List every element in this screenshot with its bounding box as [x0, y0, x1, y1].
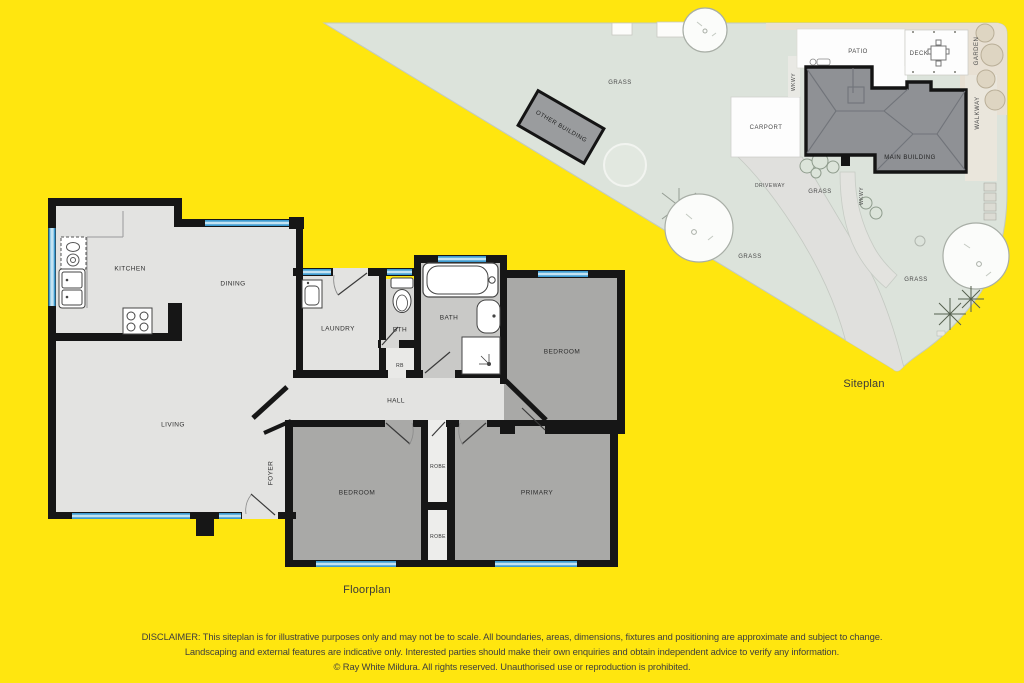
room-label-laundry: LAUNDRY: [321, 326, 355, 333]
room-label-robe-2: ROBE: [430, 534, 446, 540]
room-label-rb: RB: [396, 363, 404, 369]
disclaimer-line-2: Landscaping and external features are in…: [0, 644, 1024, 659]
room-label-hall: HALL: [387, 398, 405, 405]
room-label-living: LIVING: [161, 422, 185, 429]
room-label-bath: BATH: [440, 315, 458, 322]
room-label-bedroom-2: BEDROOM: [339, 490, 375, 497]
room-label-robe-1: ROBE: [430, 464, 446, 470]
room-label-primary: PRIMARY: [521, 490, 553, 497]
siteplan-title: Siteplan: [843, 378, 884, 390]
site-label-walkway: WALKWAY: [975, 96, 981, 129]
floorplan-title: Floorplan: [343, 584, 391, 596]
site-label-wkwy-2: WKWY: [859, 187, 865, 205]
appliance-space-icon: [61, 237, 86, 269]
disclaimer: DISCLAIMER: This siteplan is for illustr…: [0, 629, 1024, 674]
site-label-patio: PATIO: [848, 49, 868, 55]
siteplan-floorplan-sheet: KITCHEN DINING LIVING FOYER LAUNDRY BTH …: [0, 0, 1024, 683]
plan-graphics: [0, 0, 1024, 683]
room-label-foyer: FOYER: [268, 461, 275, 485]
disclaimer-line-3: © Ray White Mildura. All rights reserved…: [0, 659, 1024, 674]
disclaimer-line-1: DISCLAIMER: This siteplan is for illustr…: [0, 629, 1024, 644]
site-label-garden: GARDEN: [974, 37, 980, 66]
site-label-grass-1: GRASS: [608, 80, 632, 86]
site-label-main-building: MAIN BUILDING: [884, 155, 936, 161]
site-label-grass-3: GRASS: [808, 189, 832, 195]
shower-icon: [462, 337, 500, 374]
room-label-kitchen: KITCHEN: [114, 266, 145, 273]
floorplan-graphic: [48, 198, 625, 567]
room-label-bedroom-1: BEDROOM: [544, 349, 580, 356]
vanity-icon: [477, 300, 500, 333]
room-label-dining: DINING: [220, 281, 245, 288]
pond: [604, 144, 646, 186]
stove-icon: [123, 308, 152, 334]
room-label-bth: BTH: [393, 327, 407, 334]
toilet-icon: [391, 278, 413, 288]
site-label-grass-2: GRASS: [738, 254, 762, 260]
site-label-deck: DECK: [910, 51, 929, 57]
site-label-driveway: DRIVEWAY: [755, 183, 785, 189]
site-label-carport: CARPORT: [750, 125, 783, 131]
site-label-wkwy-1: WKWY: [791, 73, 797, 91]
patio-bench-icon: [810, 59, 830, 65]
site-label-grass-4: GRASS: [904, 277, 928, 283]
